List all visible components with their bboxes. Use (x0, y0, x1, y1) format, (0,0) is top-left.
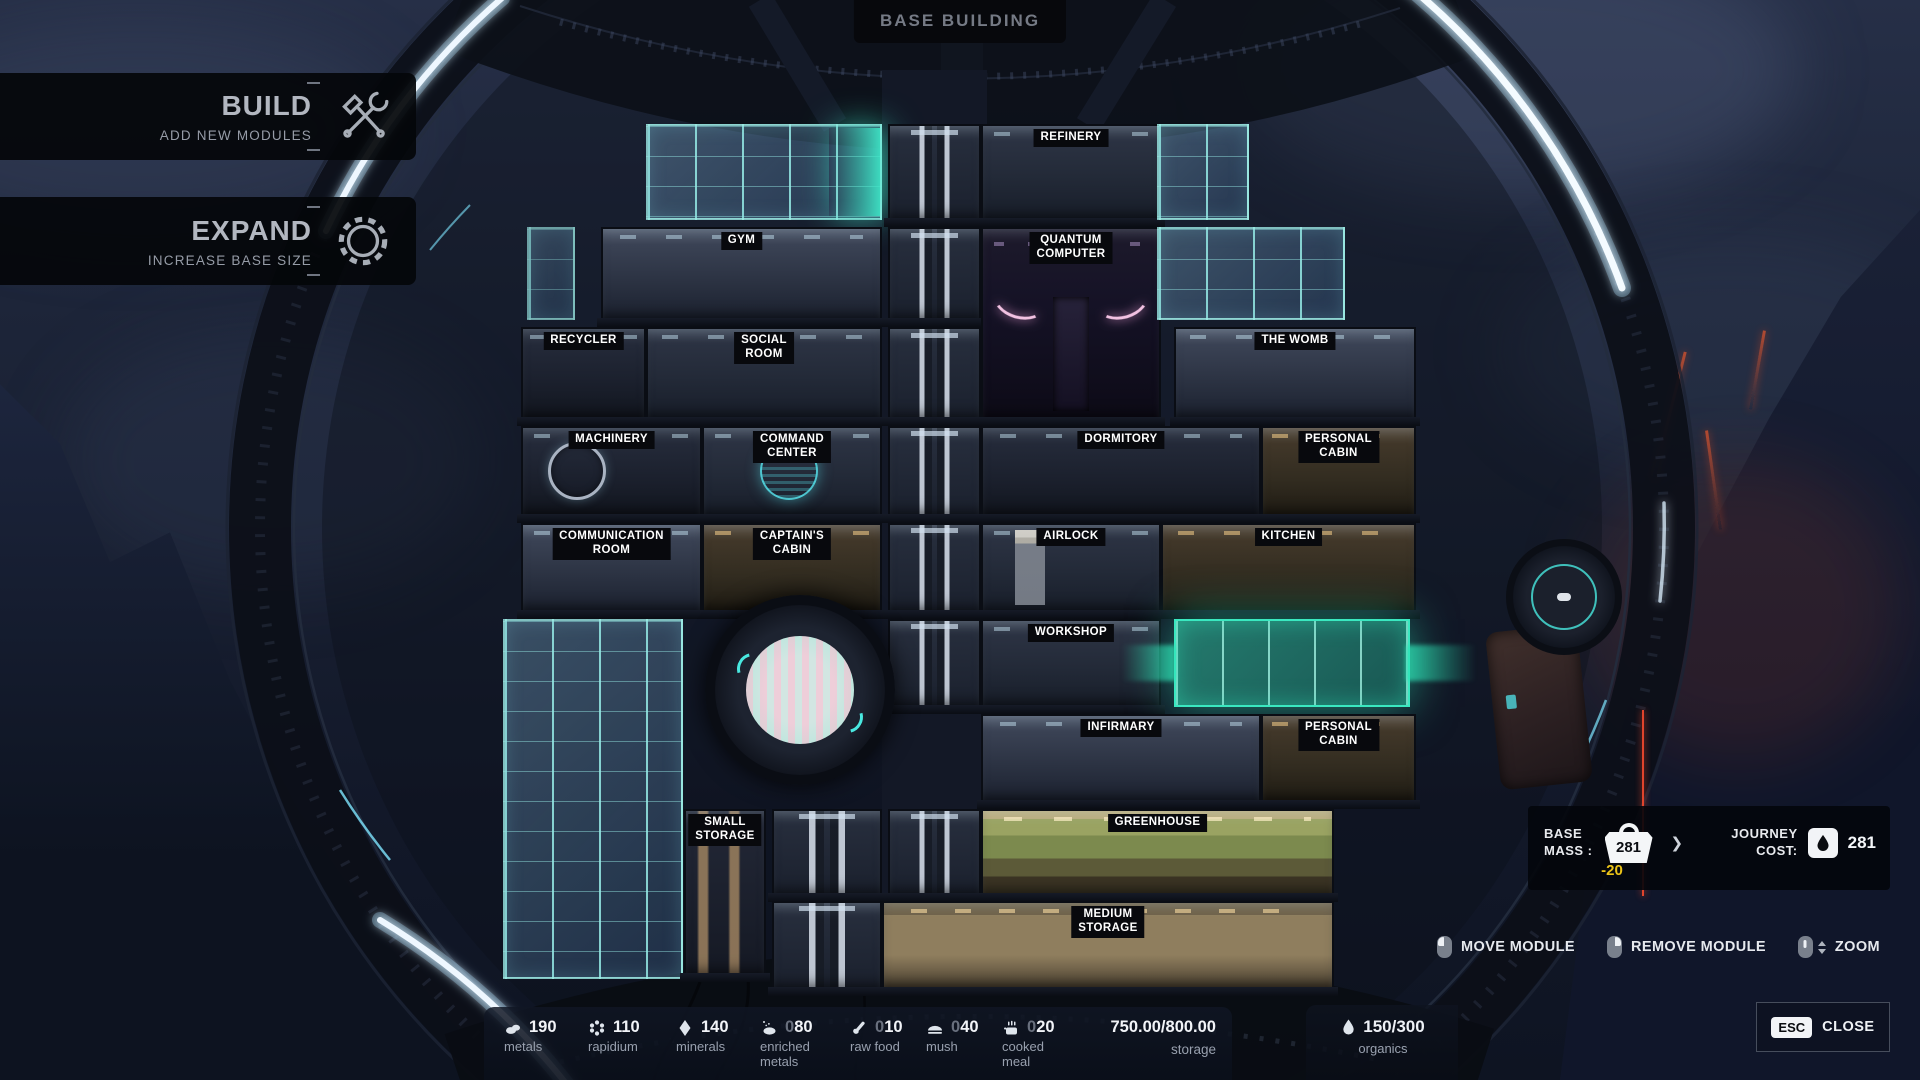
move-module-label: MOVE MODULE (1461, 939, 1575, 955)
module-communication-room[interactable]: COMMUNICATION ROOM (521, 523, 702, 612)
mass-journey-panel: BASE MASS : 281 -20 ❯ JOURNEY COST: 281 (1528, 806, 1890, 890)
page-title: BASE BUILDING (854, 0, 1066, 43)
hammer-wrench-icon (332, 86, 394, 148)
remove-module-label: REMOVE MODULE (1631, 939, 1766, 955)
resource-cooked-meal: 020 cooked meal (1002, 1018, 1084, 1070)
expand-button[interactable]: EXPAND INCREASE BASE SIZE (0, 197, 416, 285)
resource-raw-food: 010 raw food (850, 1018, 926, 1055)
module-personal-cabin-1[interactable]: PERSONAL CABIN (1261, 426, 1416, 516)
module-solar-panel-charging[interactable] (1174, 619, 1410, 707)
close-button[interactable]: ESC CLOSE (1756, 1002, 1890, 1052)
module-medium-storage[interactable]: MEDIUM STORAGE (882, 901, 1334, 989)
corner-tick (307, 206, 320, 208)
corner-tick (307, 82, 320, 84)
chevron-right-icon: ❯ (1671, 834, 1684, 852)
storage-value: 750.00/800.00 (1110, 1018, 1216, 1037)
module-label: MEDIUM STORAGE (1071, 906, 1144, 938)
module-label: QUANTUM COMPUTER (1029, 232, 1112, 264)
mouse-scroll-icon (1798, 936, 1813, 958)
remove-module-hint: REMOVE MODULE (1607, 936, 1766, 958)
journey-cost-label: JOURNEY COST: (1731, 826, 1797, 860)
module-solar-panel-large[interactable] (503, 619, 683, 979)
module-dormitory[interactable]: DORMITORY (981, 426, 1261, 516)
module-label: REFINERY (1034, 129, 1109, 147)
gear-icon (332, 210, 394, 272)
module-solar-panel[interactable] (1157, 124, 1249, 220)
corner-tick (307, 274, 320, 276)
storage-readout: 750.00/800.00 storage (1110, 1018, 1220, 1057)
machinery-port-decor (548, 442, 606, 500)
module-label: PERSONAL CABIN (1298, 431, 1379, 463)
fuel-drop-icon (1808, 828, 1838, 858)
rover-lens-dot (1557, 593, 1571, 601)
module-label: COMMUNICATION ROOM (552, 528, 671, 560)
rapidium-icon (588, 1019, 606, 1037)
module-social-room[interactable]: SOCIAL ROOM (646, 327, 882, 419)
zoom-hint: ZOOM (1798, 936, 1880, 958)
resource-enriched-metals: 080 enriched metals (760, 1018, 850, 1070)
module-label: MACHINERY (568, 431, 655, 449)
module-greenhouse[interactable]: GREENHOUSE (981, 809, 1334, 895)
base-mass-value: 281 (1616, 839, 1641, 856)
resource-bar: 190 metals 110 rapidium 140 minerals (484, 1007, 1232, 1080)
module-label: SOCIAL ROOM (734, 332, 794, 364)
resource-mush: 040 mush (926, 1018, 1002, 1055)
base-mass-label: BASE MASS : (1544, 826, 1593, 860)
cooked-meal-icon (1002, 1019, 1020, 1037)
module-label: RECYCLER (543, 332, 623, 350)
scroll-arrows-icon (1818, 941, 1826, 954)
mouse-left-icon (1437, 936, 1452, 958)
module-solar-panel[interactable] (527, 227, 575, 320)
charge-spike (1122, 645, 1176, 682)
organics-drop-icon (1341, 1018, 1356, 1036)
charge-spike (1406, 645, 1476, 682)
controls-legend: MOVE MODULE REMOVE MODULE ZOOM (1400, 936, 1880, 958)
elevator-shaft (888, 619, 981, 707)
module-label: KITCHEN (1255, 528, 1323, 546)
module-refinery[interactable]: REFINERY (981, 124, 1161, 220)
resource-metals: 190 metals (504, 1018, 588, 1055)
esc-key-badge: ESC (1771, 1017, 1812, 1038)
solar-charge-glow (829, 128, 880, 216)
engine-porthole (705, 595, 895, 785)
journey-cost-value: 281 (1848, 833, 1876, 853)
module-label: THE WOMB (1254, 332, 1335, 350)
organics-label: organics (1318, 1041, 1448, 1056)
rover-light (1506, 694, 1517, 709)
module-infirmary[interactable]: INFIRMARY (981, 714, 1261, 802)
module-solar-panel[interactable] (646, 124, 882, 220)
mouse-right-icon (1607, 936, 1622, 958)
quantum-core-decor (1053, 297, 1089, 412)
module-label: PERSONAL CABIN (1298, 719, 1379, 751)
build-button[interactable]: BUILD ADD NEW MODULES (0, 73, 416, 160)
weight-icon: 281 (1605, 825, 1653, 863)
module-airlock[interactable]: AIRLOCK (981, 523, 1161, 612)
raw-food-icon (850, 1019, 868, 1037)
module-label: AIRLOCK (1036, 528, 1105, 546)
module-gym[interactable]: GYM (601, 227, 882, 320)
module-quantum-computer[interactable]: QUANTUM COMPUTER (981, 227, 1161, 419)
module-label: WORKSHOP (1028, 624, 1114, 642)
base-building-screen: REFINERY GYM QUANTUM COMPUTER RECYCLER S… (0, 0, 1920, 1080)
zoom-label: ZOOM (1835, 939, 1880, 955)
expand-label: EXPAND (148, 215, 312, 247)
minerals-icon (676, 1019, 694, 1037)
elevator-shaft (888, 809, 981, 895)
mass-delta: -20 (1588, 862, 1636, 879)
corner-tick (307, 149, 320, 151)
organics-panel: 150/300 organics (1306, 1005, 1458, 1080)
elevator-shaft (772, 901, 882, 989)
metals-icon (504, 1019, 522, 1037)
elevator-shaft (888, 523, 981, 612)
move-module-hint: MOVE MODULE (1437, 936, 1575, 958)
elevator-shaft (772, 809, 882, 895)
expand-subtitle: INCREASE BASE SIZE (148, 253, 312, 268)
mush-icon (926, 1019, 944, 1037)
resource-minerals: 140 minerals (676, 1018, 760, 1055)
module-personal-cabin-2[interactable]: PERSONAL CABIN (1261, 714, 1416, 802)
enriched-metals-icon (760, 1019, 778, 1037)
module-kitchen[interactable]: KITCHEN (1161, 523, 1416, 612)
elevator-shaft (888, 124, 981, 220)
module-label: SMALL STORAGE (688, 814, 761, 846)
module-label: CAPTAIN'S CABIN (753, 528, 831, 560)
organics-value: 150/300 (1363, 1017, 1424, 1037)
module-label: DORMITORY (1077, 431, 1164, 449)
module-label: INFIRMARY (1080, 719, 1161, 737)
build-subtitle: ADD NEW MODULES (160, 128, 312, 143)
elevator-shaft (888, 327, 981, 419)
module-the-womb[interactable]: THE WOMB (1174, 327, 1416, 419)
resource-rapidium: 110 rapidium (588, 1018, 676, 1055)
module-solar-panel[interactable] (1157, 227, 1345, 320)
elevator-shaft (888, 227, 981, 320)
quantum-arc-decor (989, 274, 1051, 325)
storage-label: storage (1110, 1042, 1216, 1057)
quantum-arc-decor (1091, 274, 1153, 325)
module-command-center[interactable]: COMMAND CENTER (702, 426, 882, 516)
close-label: CLOSE (1822, 1019, 1874, 1035)
build-label: BUILD (160, 90, 312, 122)
module-label: GYM (721, 232, 762, 250)
module-machinery[interactable]: MACHINERY (521, 426, 702, 516)
module-label: COMMAND CENTER (753, 431, 831, 463)
module-label: GREENHOUSE (1108, 814, 1208, 832)
module-recycler[interactable]: RECYCLER (521, 327, 646, 419)
elevator-shaft (888, 426, 981, 516)
module-small-storage[interactable]: SMALL STORAGE (684, 809, 766, 975)
rover-lens (1506, 539, 1622, 655)
